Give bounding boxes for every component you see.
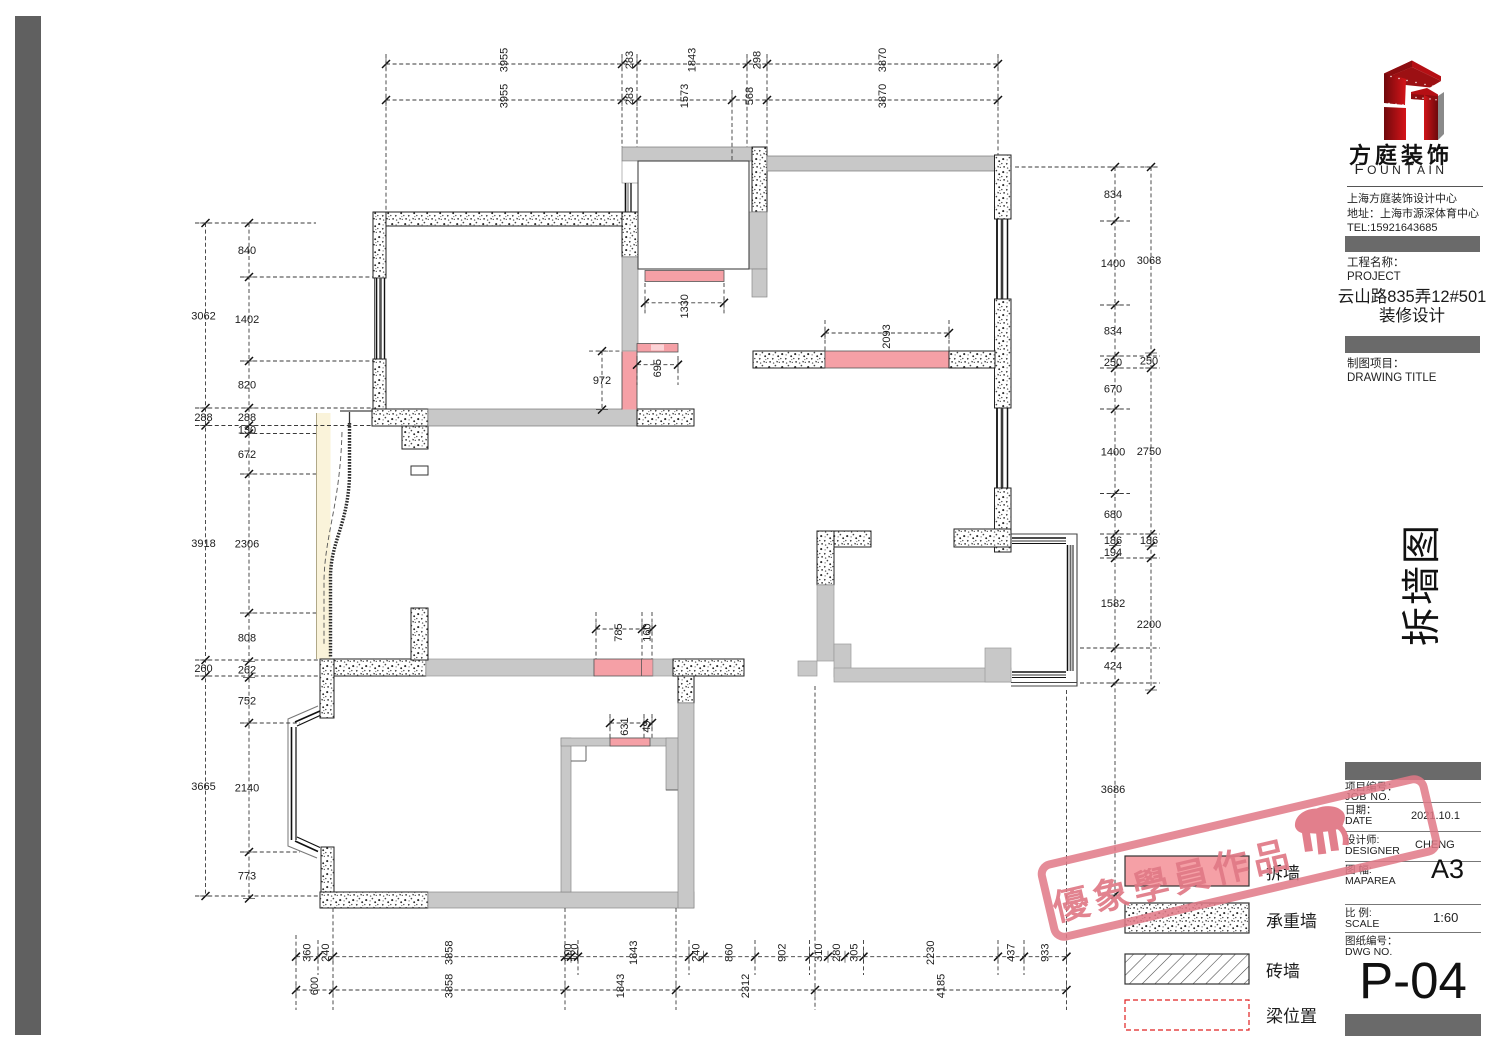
svg-text:680: 680 (1104, 509, 1122, 521)
svg-text:600: 600 (309, 977, 321, 995)
svg-text:3858: 3858 (444, 974, 456, 998)
svg-text:194: 194 (1104, 547, 1122, 559)
svg-text:3955: 3955 (499, 84, 511, 108)
svg-text:3665: 3665 (191, 781, 215, 793)
svg-text:1400: 1400 (1101, 446, 1125, 458)
svg-text:3918: 3918 (191, 538, 215, 550)
svg-text:186: 186 (1104, 535, 1122, 547)
svg-text:424: 424 (1104, 661, 1122, 673)
svg-text:260: 260 (194, 663, 212, 675)
svg-text:2312: 2312 (740, 974, 752, 998)
svg-text:860: 860 (724, 944, 736, 962)
svg-text:2306: 2306 (235, 539, 259, 551)
svg-text:3062: 3062 (191, 311, 215, 323)
svg-text:283: 283 (624, 87, 636, 105)
svg-text:梁位置: 梁位置 (1266, 1007, 1317, 1026)
svg-text:631: 631 (619, 717, 631, 735)
svg-text:2230: 2230 (925, 940, 937, 964)
svg-text:1843: 1843 (615, 974, 627, 998)
svg-text:1400: 1400 (1101, 258, 1125, 270)
svg-text:695: 695 (652, 359, 664, 377)
svg-text:437: 437 (1006, 944, 1018, 962)
svg-text:2140: 2140 (235, 783, 259, 795)
svg-text:834: 834 (1104, 189, 1122, 201)
svg-text:承重墙: 承重墙 (1266, 912, 1317, 931)
svg-text:752: 752 (238, 695, 256, 707)
svg-text:1330: 1330 (679, 294, 691, 318)
svg-text:3686: 3686 (1101, 784, 1125, 796)
svg-text:240: 240 (320, 944, 332, 962)
svg-text:298: 298 (752, 51, 764, 69)
svg-text:672: 672 (238, 449, 256, 461)
svg-text:1843: 1843 (687, 48, 699, 72)
svg-text:3870: 3870 (877, 48, 889, 72)
svg-text:4185: 4185 (935, 974, 947, 998)
svg-text:3955: 3955 (499, 48, 511, 72)
svg-text:120: 120 (569, 944, 581, 962)
svg-text:2750: 2750 (1137, 446, 1161, 458)
svg-text:1582: 1582 (1101, 598, 1125, 610)
svg-text:1573: 1573 (679, 84, 691, 108)
svg-text:186: 186 (1140, 535, 1158, 547)
svg-text:砖墙: 砖墙 (1266, 962, 1300, 981)
svg-text:250: 250 (1104, 357, 1122, 369)
svg-text:820: 820 (238, 380, 256, 392)
svg-text:568: 568 (744, 87, 756, 105)
svg-text:130: 130 (238, 425, 256, 437)
svg-text:288: 288 (238, 412, 256, 424)
svg-text:262: 262 (238, 665, 256, 677)
svg-text:283: 283 (624, 51, 636, 69)
svg-text:2200: 2200 (1137, 619, 1161, 631)
svg-text:808: 808 (238, 632, 256, 644)
svg-text:834: 834 (1104, 326, 1122, 338)
svg-text:288: 288 (194, 412, 212, 424)
svg-text:3858: 3858 (444, 940, 456, 964)
svg-text:1402: 1402 (235, 314, 259, 326)
svg-text:3068: 3068 (1137, 255, 1161, 267)
svg-text:2093: 2093 (881, 324, 893, 348)
svg-text:49: 49 (641, 720, 653, 732)
svg-text:773: 773 (238, 870, 256, 882)
svg-text:160: 160 (642, 623, 654, 641)
svg-text:902: 902 (777, 944, 789, 962)
svg-text:972: 972 (593, 375, 611, 387)
svg-text:305: 305 (849, 944, 861, 962)
svg-text:280: 280 (831, 944, 843, 962)
svg-text:785: 785 (613, 623, 625, 641)
svg-text:933: 933 (1040, 944, 1052, 962)
svg-text:840: 840 (238, 245, 256, 257)
svg-text:250: 250 (1140, 356, 1158, 368)
svg-text:3870: 3870 (877, 84, 889, 108)
svg-text:360: 360 (302, 944, 314, 962)
svg-text:1843: 1843 (628, 940, 640, 964)
svg-text:240: 240 (691, 944, 703, 962)
svg-text:670: 670 (1104, 384, 1122, 396)
